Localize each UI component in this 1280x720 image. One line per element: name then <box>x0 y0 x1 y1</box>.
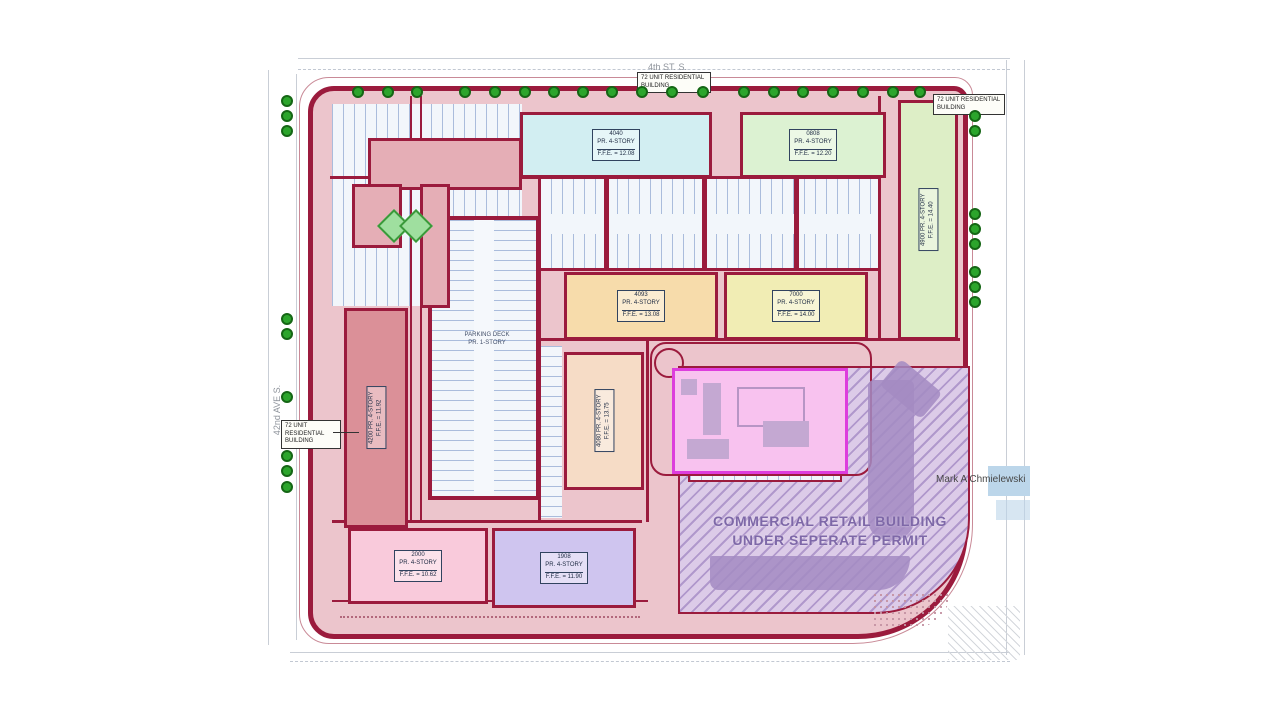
street-centerline-bottom <box>290 661 1010 662</box>
retail-fixture <box>681 379 697 395</box>
tree-icon <box>969 266 981 278</box>
tree-icon <box>738 86 750 98</box>
tree-icon <box>281 95 293 107</box>
tree-icon <box>969 296 981 308</box>
parking-deck-label: PARKING DECK PR. 1-STORY <box>452 332 522 348</box>
note-leader-line <box>333 432 359 433</box>
topleft-corridor <box>420 184 450 308</box>
building-magenta-retail <box>672 368 848 474</box>
street-line-right2 <box>1024 60 1025 655</box>
tree-icon <box>411 86 423 98</box>
landscape-stipple <box>872 592 950 628</box>
drive-line <box>540 268 878 271</box>
building-label: 7000 PR. 4-STORY F.F.E. = 14.00 <box>772 290 819 321</box>
curb-dotted-line <box>340 616 640 618</box>
street-line-bottom <box>290 652 1010 653</box>
building-red-left: 4200 PR. 4-STORY F.F.E. = 11.92 <box>344 308 408 528</box>
tree-icon <box>548 86 560 98</box>
drive-line <box>646 340 649 522</box>
tree-icon <box>382 86 394 98</box>
building-orange-mid: 4093 PR. 4-STORY F.F.E. = 13.08 <box>564 272 718 340</box>
tree-icon <box>281 391 293 403</box>
building-label: 0808 PR. 4-STORY F.F.E. = 12.20 <box>789 129 836 160</box>
street-label-top: 4th ST. S. <box>648 62 687 72</box>
tree-icon <box>459 86 471 98</box>
commercial-structure-shape <box>710 556 910 590</box>
building-label: 2000 PR. 4-STORY F.F.E. = 10.62 <box>394 550 441 581</box>
building-label: 4093 PR. 4-STORY F.F.E. = 13.08 <box>617 290 664 321</box>
tree-icon <box>606 86 618 98</box>
tree-icon <box>281 450 293 462</box>
tree-icon <box>577 86 589 98</box>
building-yellow-mid: 7000 PR. 4-STORY F.F.E. = 14.00 <box>724 272 868 340</box>
tree-icon <box>857 86 869 98</box>
building-label: 4080 PR. 4-STORY F.F.E. = 13.75 <box>594 390 614 453</box>
building-green-top: 0808 PR. 4-STORY F.F.E. = 12.20 <box>740 112 886 178</box>
tree-icon <box>666 86 678 98</box>
tree-icon <box>352 86 364 98</box>
tree-icon <box>969 208 981 220</box>
retail-fixture <box>763 421 809 447</box>
corner-hatch-texture <box>948 606 1020 660</box>
building-connector <box>702 178 707 268</box>
tree-icon <box>281 313 293 325</box>
building-label: 1908 PR. 4-STORY F.F.E. = 11.90 <box>540 552 587 583</box>
watermark-name: Mark A Chmielewski <box>936 474 1025 485</box>
commercial-area-label: COMMERCIAL RETAIL BUILDING UNDER SEPERAT… <box>690 512 970 550</box>
building-label: 4900 PR. 4-STORY F.F.E. = 14.40 <box>918 189 938 252</box>
tree-icon <box>519 86 531 98</box>
building-pink-bottom: 2000 PR. 4-STORY F.F.E. = 10.62 <box>348 528 488 604</box>
tree-icon <box>969 125 981 137</box>
blue-patch <box>996 500 1030 520</box>
street-line-top <box>298 58 1010 59</box>
tree-icon <box>969 110 981 122</box>
tree-icon <box>887 86 899 98</box>
building-blue-top: 4040 PR. 4-STORY F.F.E. = 12.08 <box>520 112 712 178</box>
street-line-right <box>1006 60 1007 655</box>
tree-icon <box>281 465 293 477</box>
tree-icon <box>914 86 926 98</box>
tree-icon <box>489 86 501 98</box>
tree-icon <box>969 281 981 293</box>
tree-icon <box>827 86 839 98</box>
building-tan-center: 4080 PR. 4-STORY F.F.E. = 13.75 <box>564 352 644 490</box>
tree-icon <box>768 86 780 98</box>
building-label: 4040 PR. 4-STORY F.F.E. = 12.08 <box>592 129 639 160</box>
building-connector <box>604 178 609 268</box>
tree-icon <box>636 86 648 98</box>
building-purple-bottom: 1908 PR. 4-STORY F.F.E. = 11.90 <box>492 528 636 608</box>
parking-aisle-mid <box>540 214 878 234</box>
tree-icon <box>969 223 981 235</box>
site-plan-canvas: 4th ST. S. 42nd AVE S. PARKING DECK PR. … <box>0 0 1280 720</box>
tree-icon <box>969 238 981 250</box>
tree-icon <box>797 86 809 98</box>
building-label: 4200 PR. 4-STORY F.F.E. = 11.92 <box>366 387 386 450</box>
retail-fixture <box>703 383 721 435</box>
parking-strip-left-of-tan <box>540 346 562 518</box>
note-residential-left: 72 UNIT RESIDENTIAL BUILDING <box>281 420 341 449</box>
tree-icon <box>281 481 293 493</box>
tree-icon <box>281 328 293 340</box>
building-green-right: 4900 PR. 4-STORY F.F.E. = 14.40 <box>898 100 958 340</box>
street-line-left2 <box>296 74 297 640</box>
tree-icon <box>697 86 709 98</box>
tree-icon <box>281 125 293 137</box>
topleft-structure <box>368 138 522 190</box>
tree-icon <box>281 110 293 122</box>
street-line-left <box>268 70 269 645</box>
retail-fixture <box>687 439 729 459</box>
building-connector <box>794 178 799 268</box>
